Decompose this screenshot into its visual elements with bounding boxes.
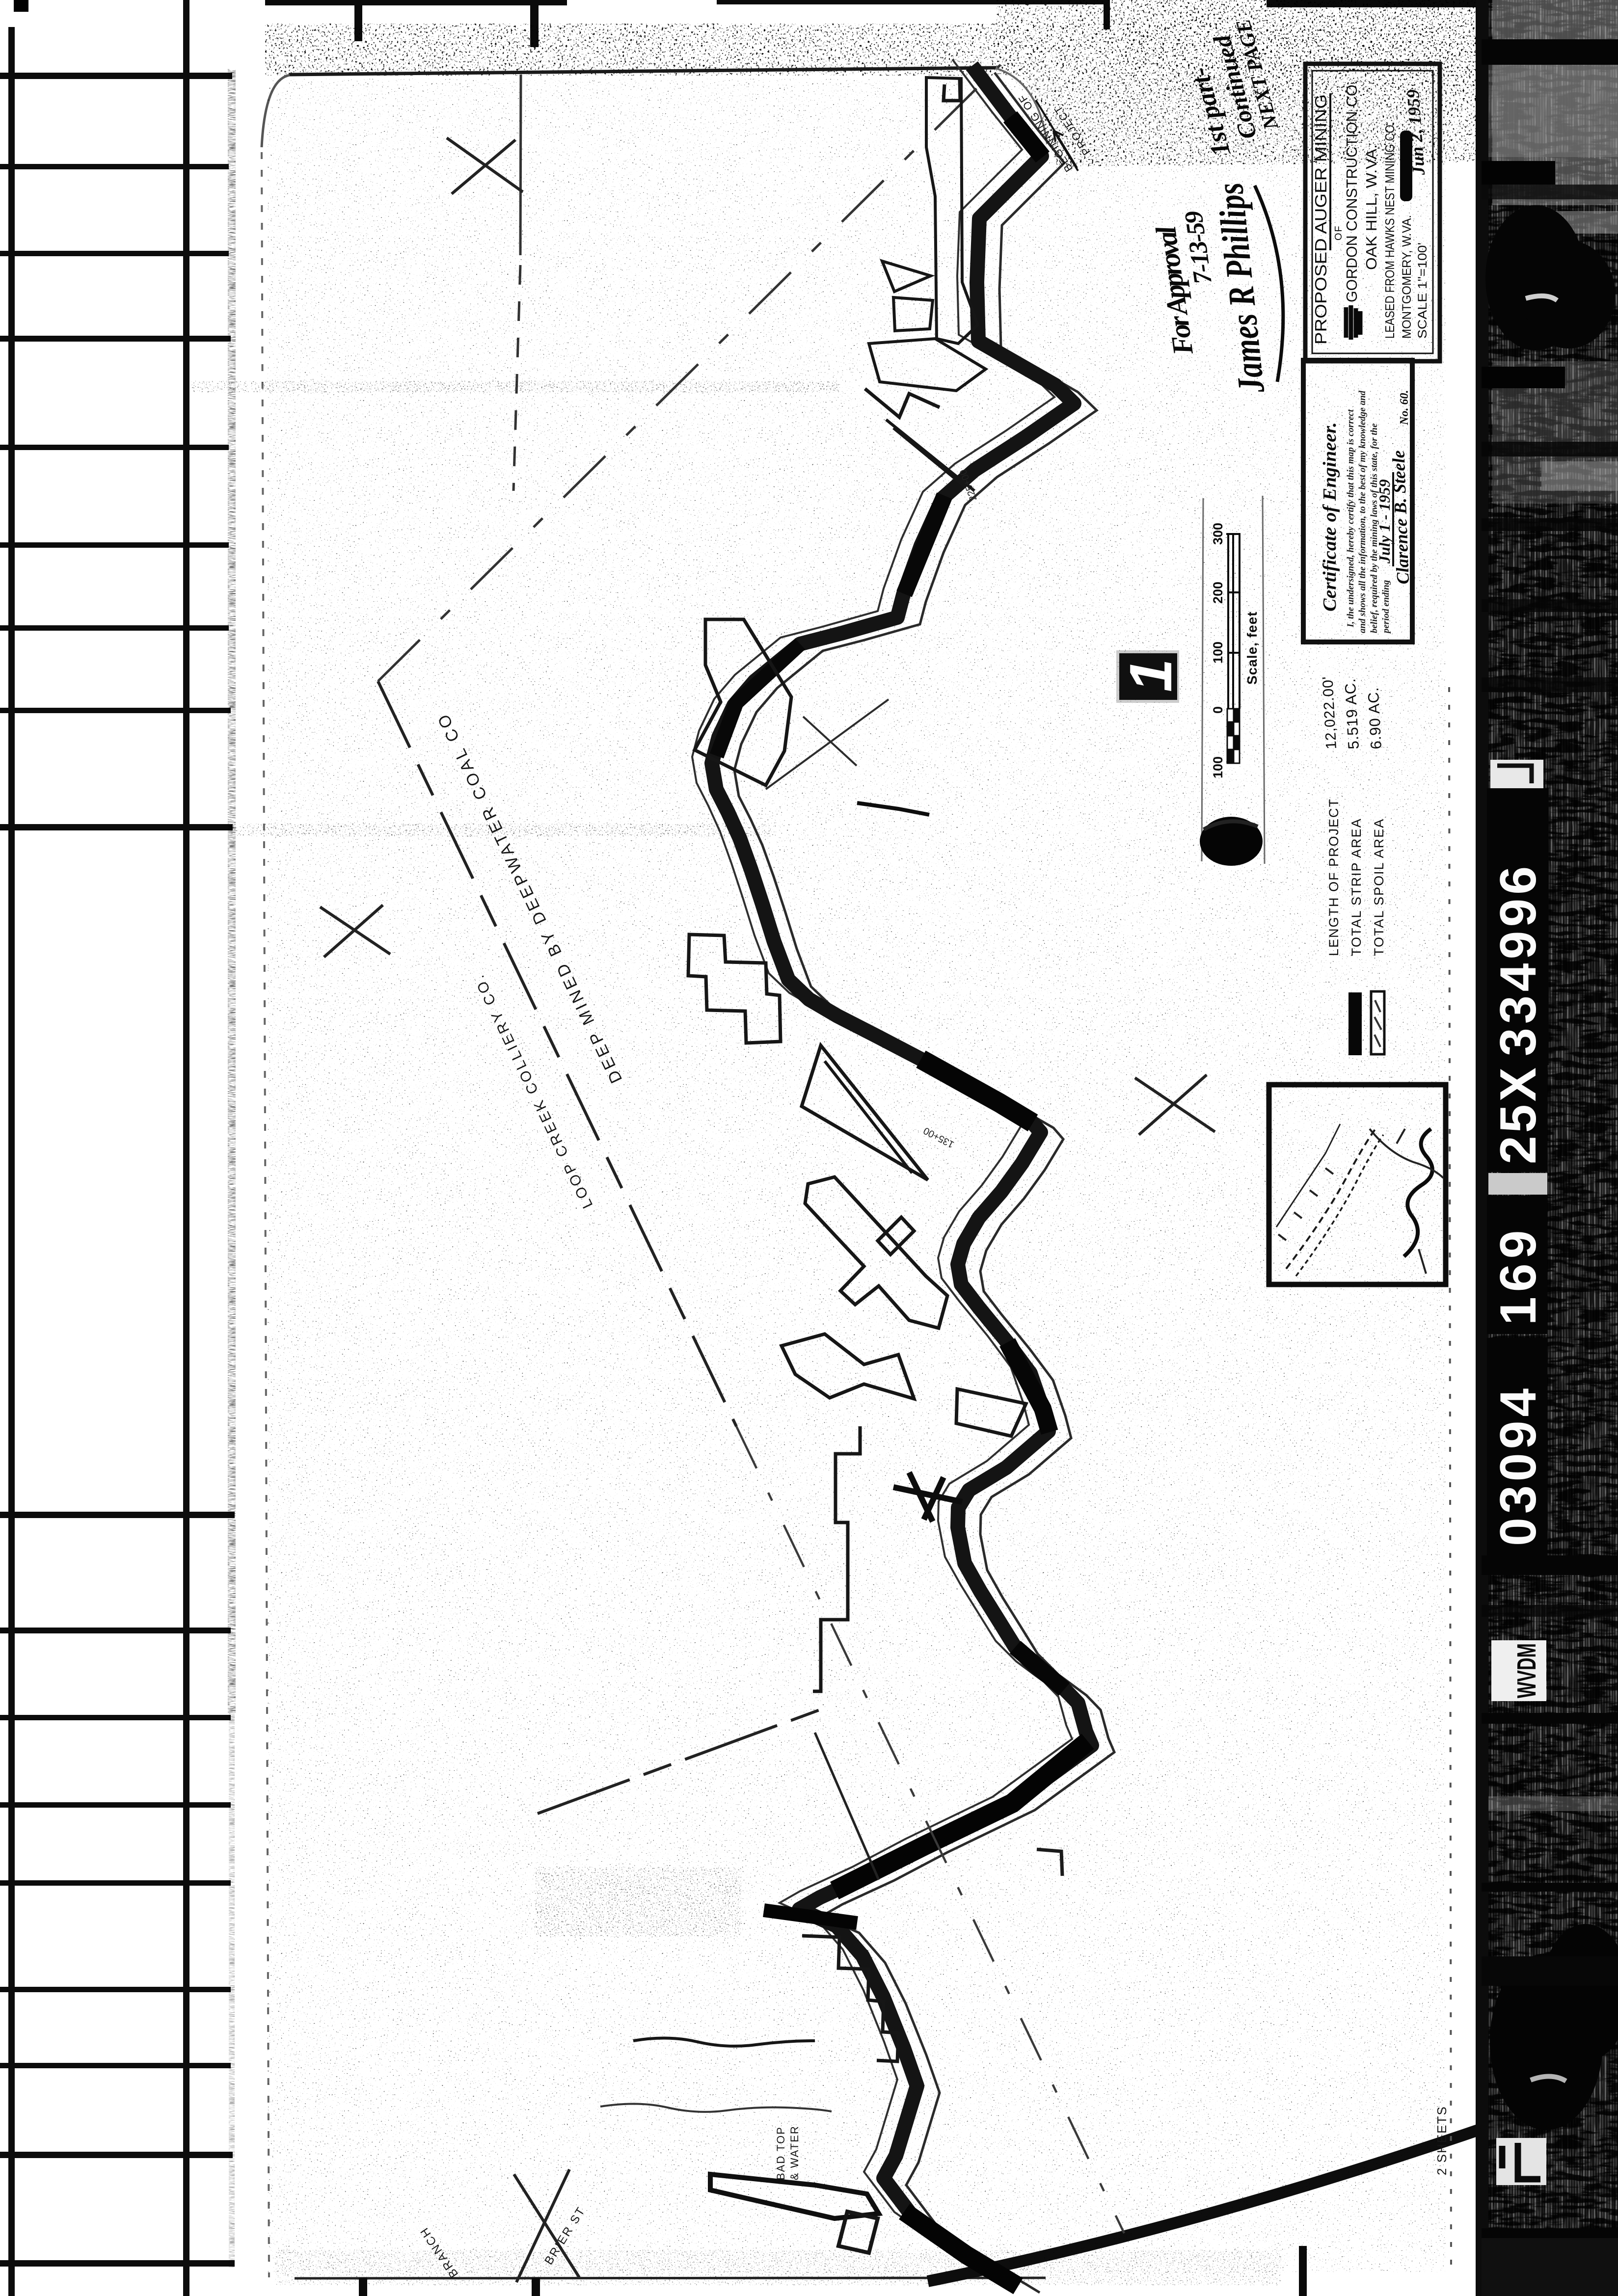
svg-text:& WATER: & WATER xyxy=(788,2125,801,2180)
svg-text:WVDM: WVDM xyxy=(1512,1643,1541,1698)
svg-text:300: 300 xyxy=(1211,523,1225,545)
svg-text:period ending: period ending xyxy=(1381,580,1391,634)
svg-text:I, the undersigned, hereby cer: I, the undersigned, hereby certify that … xyxy=(1346,409,1356,628)
svg-text:SCALE 1"=100': SCALE 1"=100' xyxy=(1416,242,1429,339)
svg-text:OF: OF xyxy=(1333,225,1344,240)
svg-text:2 SHEETS: 2 SHEETS xyxy=(1434,2106,1449,2175)
svg-text:0: 0 xyxy=(1211,706,1225,714)
svg-text:BAD TOP: BAD TOP xyxy=(775,2126,787,2180)
svg-text:169: 169 xyxy=(1490,1225,1547,1325)
svg-text:TOTAL STRIP AREA: TOTAL STRIP AREA xyxy=(1349,818,1364,956)
svg-text:TOTAL SPOIL AREA: TOTAL SPOIL AREA xyxy=(1372,818,1386,956)
svg-text:OAK HILL, W.VA.: OAK HILL, W.VA. xyxy=(1363,144,1380,270)
svg-text:Scale, feet: Scale, feet xyxy=(1244,611,1260,685)
svg-text:200: 200 xyxy=(1211,582,1225,604)
svg-text:GORDON CONSTRUCTION CO.: GORDON CONSTRUCTION CO. xyxy=(1343,80,1360,302)
svg-text:LEASED FROM HAWKS NEST MINING: LEASED FROM HAWKS NEST MINING CO. xyxy=(1382,122,1397,339)
svg-text:100: 100 xyxy=(1211,756,1225,778)
svg-text:25X: 25X xyxy=(1490,1065,1547,1164)
svg-text:PROPOSED AUGER MINING: PROPOSED AUGER MINING xyxy=(1312,94,1330,345)
svg-text:MONTGOMERY, W.VA.: MONTGOMERY, W.VA. xyxy=(1400,215,1414,339)
svg-text:100: 100 xyxy=(1211,641,1225,664)
svg-text:6.90 AC.: 6.90 AC. xyxy=(1364,687,1385,750)
svg-text:Certificate of Engineer.: Certificate of Engineer. xyxy=(1320,422,1340,612)
svg-text:LENGTH OF PROJECT: LENGTH OF PROJECT xyxy=(1326,798,1341,956)
svg-text:No. 60.: No. 60. xyxy=(1398,390,1411,426)
svg-text:334996: 334996 xyxy=(1490,862,1547,1056)
svg-text:03094: 03094 xyxy=(1490,1385,1547,1546)
svg-text:and shows all the information,: and shows all the information, to the be… xyxy=(1357,390,1368,633)
svg-text:1: 1 xyxy=(1117,659,1184,692)
